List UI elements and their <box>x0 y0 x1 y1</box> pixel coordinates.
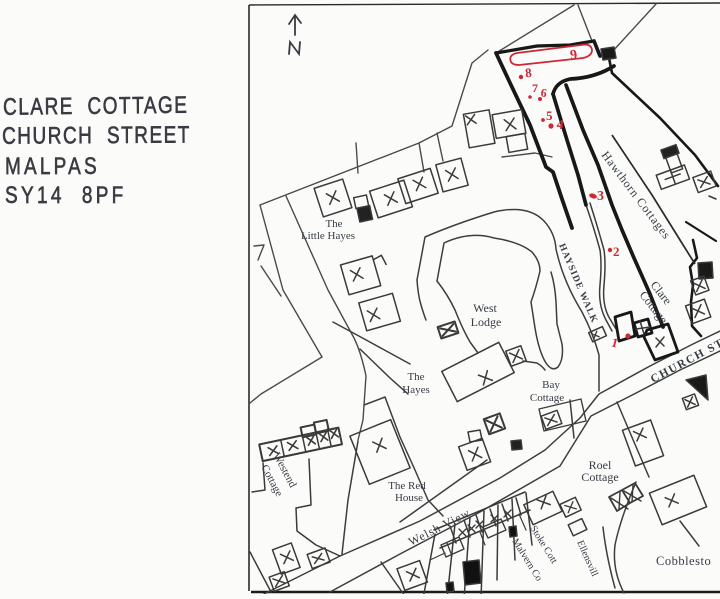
svg-text:House: House <box>395 492 423 504</box>
svg-text:The: The <box>407 371 424 383</box>
svg-text:The Red: The Red <box>388 480 426 492</box>
svg-text:Cobblesto: Cobblesto <box>656 554 711 568</box>
svg-text:Ellensvill: Ellensvill <box>574 539 600 579</box>
svg-text:Bay: Bay <box>542 379 560 391</box>
svg-text:Cottage: Cottage <box>530 392 564 404</box>
svg-text:5: 5 <box>546 108 553 123</box>
svg-text:The: The <box>325 218 342 230</box>
svg-text:3: 3 <box>597 189 604 204</box>
svg-text:HAYSIDE WALK: HAYSIDE WALK <box>556 242 599 325</box>
svg-text:9: 9 <box>569 48 578 64</box>
svg-text:Little Hayes: Little Hayes <box>301 230 355 242</box>
svg-text:1: 1 <box>610 334 620 350</box>
svg-text:Lodge: Lodge <box>471 315 502 329</box>
svg-text:6: 6 <box>540 85 548 100</box>
svg-text:Hayes: Hayes <box>402 384 430 396</box>
svg-text:West: West <box>473 301 497 315</box>
svg-text:2: 2 <box>613 244 620 259</box>
svg-text:7: 7 <box>532 81 538 95</box>
svg-text:8: 8 <box>524 65 533 81</box>
svg-text:Cottage: Cottage <box>581 470 618 484</box>
